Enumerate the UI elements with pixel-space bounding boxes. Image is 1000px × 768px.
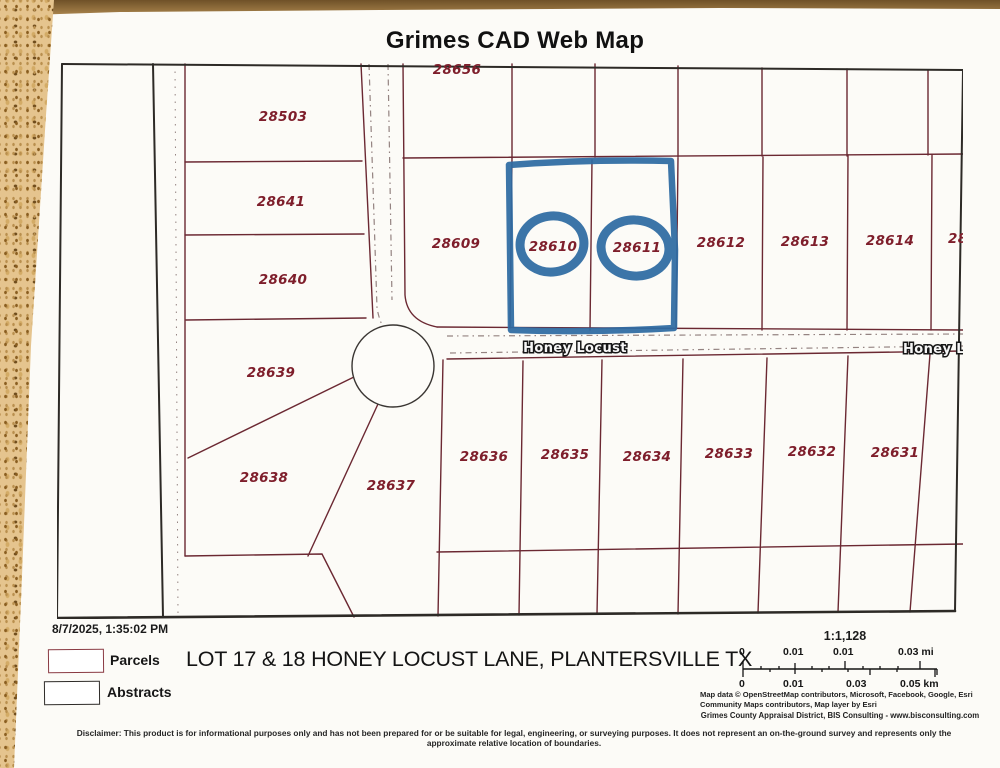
parcel-label: 28503 xyxy=(259,109,307,125)
scale-km-tick: 0 xyxy=(739,678,745,690)
scale-ratio: 1:1,128 xyxy=(740,629,950,643)
parcel-label-clipped-right: 28 xyxy=(948,231,967,247)
street-label: Honey Locust xyxy=(523,341,627,356)
parcel-label-highlighted: 28611 xyxy=(613,240,661,256)
legend-label-parcels: Parcels xyxy=(110,652,160,668)
road-dashed-lines xyxy=(175,64,963,616)
legend-swatch-parcels xyxy=(48,649,104,674)
cul-de-sac xyxy=(352,325,434,407)
parcel-label: 28636 xyxy=(460,449,508,465)
parcel-label: 28635 xyxy=(541,447,589,463)
parcel-label: 28639 xyxy=(247,365,295,381)
scale-mi-tick: 0 xyxy=(739,646,745,658)
abstract-boundaries xyxy=(57,64,963,618)
disclaimer-text: Disclaimer: This product is for informat… xyxy=(58,728,970,748)
appraisal-district-credit: Grimes County Appraisal District, BIS Co… xyxy=(688,711,992,720)
parcel-label: 28614 xyxy=(866,233,914,249)
parcel-label: 28634 xyxy=(623,449,671,465)
parcel-label: 28632 xyxy=(788,444,836,460)
legend-swatch-abstracts xyxy=(44,681,100,706)
scale-mi-tick: 0.01 xyxy=(783,646,803,658)
legend-label-abstracts: Abstracts xyxy=(107,684,172,700)
parcel-label-highlighted: 28610 xyxy=(529,239,577,255)
parcel-label: 28609 xyxy=(432,236,480,252)
scale-mi-tick: 0.01 xyxy=(833,646,853,658)
parcel-label: 28613 xyxy=(781,234,829,250)
parcel-label: 28640 xyxy=(259,272,307,288)
parcel-label: 28631 xyxy=(871,445,919,461)
scale-bar xyxy=(743,661,937,677)
scale-km-tick: 0.01 xyxy=(783,678,803,690)
parcel-label-clipped-top: 28656 xyxy=(433,62,481,78)
street-label-right: Honey Loc xyxy=(903,342,982,357)
parcel-label: 28638 xyxy=(240,470,288,486)
scale-km-tick: 0.03 xyxy=(846,678,866,690)
scale-mi-tick: 0.03 mi xyxy=(898,646,934,658)
scale-km-tick: 0.05 km xyxy=(900,678,939,690)
map-data-credits: Map data © OpenStreetMap contributors, M… xyxy=(700,690,994,709)
parcel-label: 28612 xyxy=(697,235,745,251)
parcel-label: 28637 xyxy=(367,478,416,494)
parcel-label: 28641 xyxy=(257,194,305,210)
timestamp: 8/7/2025, 1:35:02 PM xyxy=(52,622,168,636)
parcel-label: 28633 xyxy=(705,446,753,462)
map-subject-address: LOT 17 & 18 HONEY LOCUST LANE, PLANTERSV… xyxy=(186,647,752,672)
